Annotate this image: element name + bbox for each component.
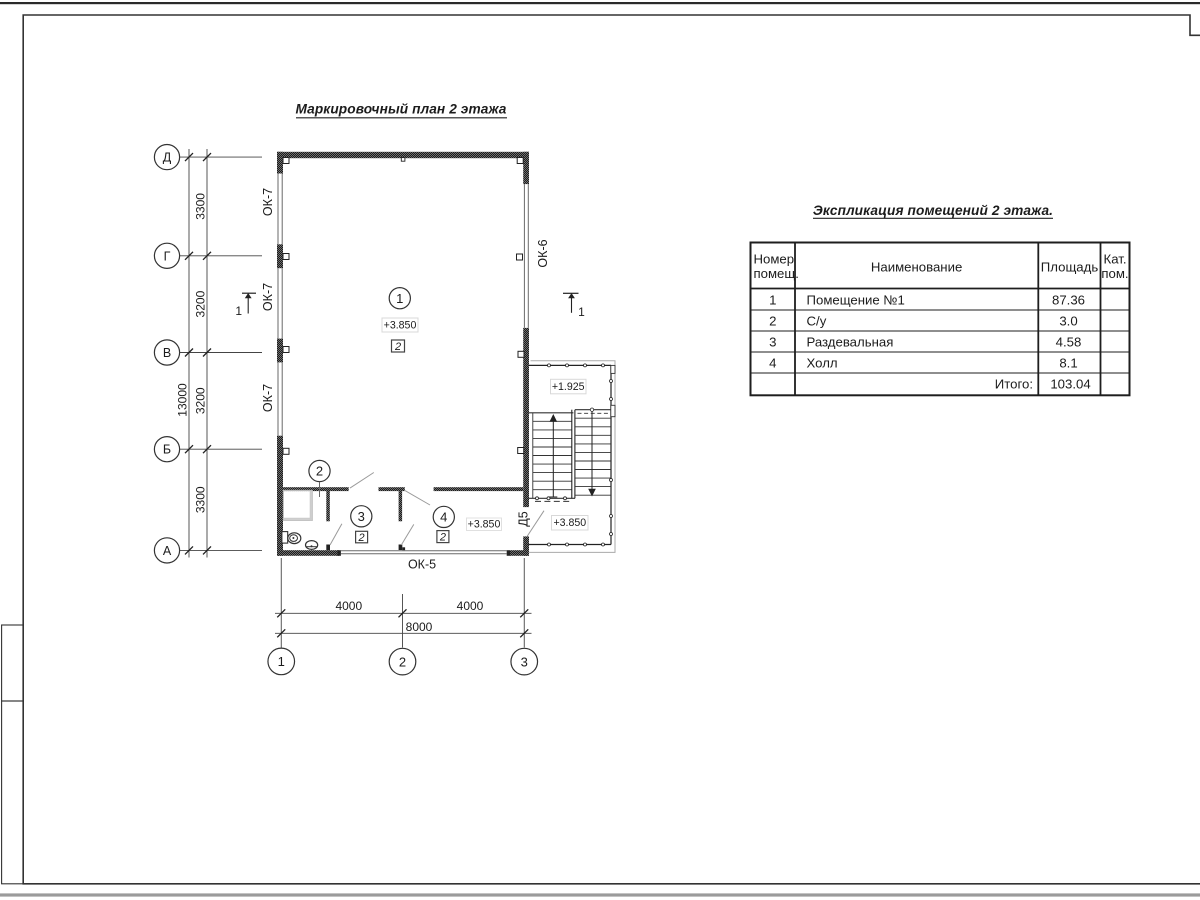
svg-text:пом.: пом. [1101,266,1128,281]
svg-text:Г: Г [164,249,171,263]
svg-text:3: 3 [521,654,528,669]
svg-text:Холл: Холл [807,355,838,370]
svg-text:ОК-7: ОК-7 [261,188,275,216]
svg-text:ОК-7: ОК-7 [261,384,275,412]
svg-text:+3.850: +3.850 [384,320,417,332]
svg-text:ОК-5: ОК-5 [408,558,436,572]
svg-text:4: 4 [769,355,776,370]
svg-text:4000: 4000 [457,599,484,613]
svg-text:А: А [163,544,172,558]
svg-text:87.36: 87.36 [1052,292,1085,307]
svg-text:ОК-6: ОК-6 [536,239,550,267]
svg-text:С/у: С/у [807,313,827,328]
svg-text:3300: 3300 [194,486,208,513]
svg-text:помещ.: помещ. [754,266,799,281]
svg-text:2: 2 [394,341,401,353]
svg-text:1: 1 [278,654,285,669]
svg-text:+3.850: +3.850 [553,517,586,529]
svg-text:Экспликация помещений 2 этажа.: Экспликация помещений 2 этажа. [813,203,1053,218]
svg-text:Д5: Д5 [517,511,531,526]
svg-text:Номер: Номер [754,252,795,267]
svg-text:Кат.: Кат. [1104,252,1127,267]
svg-text:+1.925: +1.925 [552,381,585,393]
svg-text:1: 1 [235,304,242,318]
svg-text:4: 4 [440,510,447,525]
svg-text:3200: 3200 [194,387,208,414]
svg-text:2: 2 [316,464,323,479]
svg-text:1: 1 [769,292,776,307]
svg-text:Раздевальная: Раздевальная [807,334,894,349]
svg-text:Наименование: Наименование [871,259,962,274]
svg-text:3300: 3300 [194,193,208,220]
svg-text:Итого:: Итого: [995,377,1033,392]
svg-text:1: 1 [396,291,403,306]
svg-text:Д: Д [163,151,172,165]
svg-text:Площадь: Площадь [1041,259,1099,274]
svg-text:103.04: 103.04 [1050,377,1090,392]
svg-text:2: 2 [769,313,776,328]
svg-text:2: 2 [399,654,406,669]
svg-text:8000: 8000 [406,620,433,634]
svg-text:2: 2 [358,532,365,544]
svg-text:Помещение №1: Помещение №1 [807,292,905,307]
svg-text:+3.850: +3.850 [468,519,501,531]
svg-text:Маркировочный план 2 этажа: Маркировочный план 2 этажа [295,102,506,117]
svg-text:3.0: 3.0 [1059,313,1077,328]
svg-text:13000: 13000 [176,383,190,417]
svg-text:4.58: 4.58 [1056,334,1082,349]
svg-text:2: 2 [439,531,446,543]
svg-text:3: 3 [358,509,365,524]
svg-text:ОК-7: ОК-7 [261,283,275,311]
svg-text:1: 1 [578,305,585,319]
svg-text:8.1: 8.1 [1059,355,1077,370]
svg-text:4000: 4000 [335,599,362,613]
svg-text:В: В [163,346,171,360]
svg-text:3: 3 [769,334,776,349]
svg-text:3200: 3200 [194,290,208,317]
svg-text:Б: Б [163,443,171,457]
